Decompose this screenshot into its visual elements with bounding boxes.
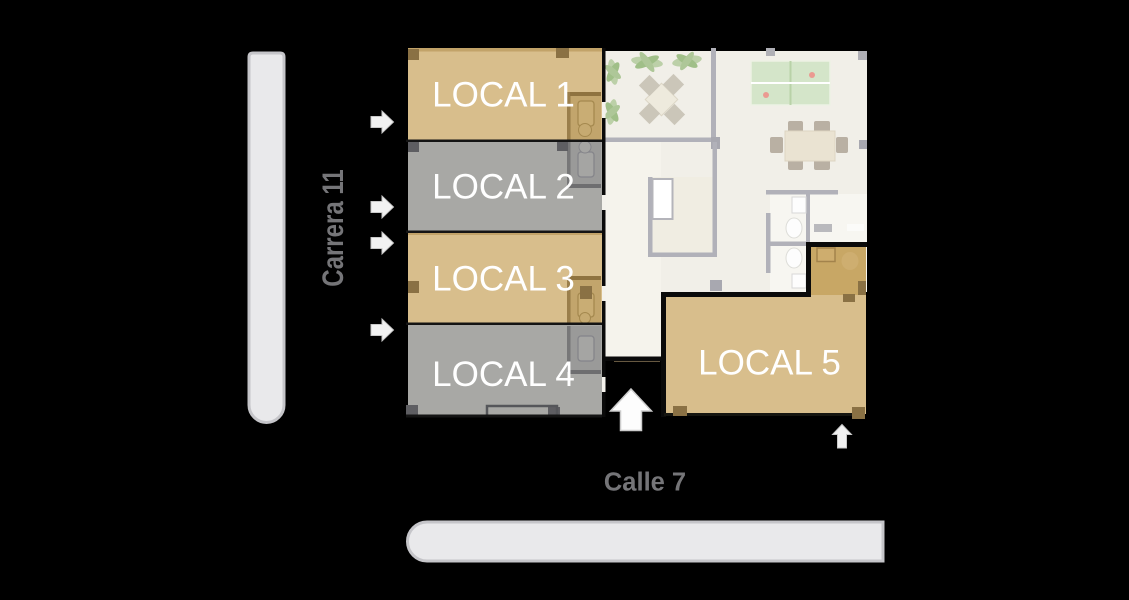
- svg-text:Calle 7: Calle 7: [604, 469, 686, 497]
- svg-text:LOCAL 3: LOCAL 3: [432, 260, 575, 299]
- svg-text:LOCAL 2: LOCAL 2: [432, 168, 575, 207]
- svg-text:LOCAL 1: LOCAL 1: [432, 76, 575, 115]
- svg-text:LOCAL 4: LOCAL 4: [432, 355, 575, 394]
- svg-text:LOCAL 5: LOCAL 5: [698, 344, 841, 383]
- svg-text:Carrera 11: Carrera 11: [315, 169, 349, 286]
